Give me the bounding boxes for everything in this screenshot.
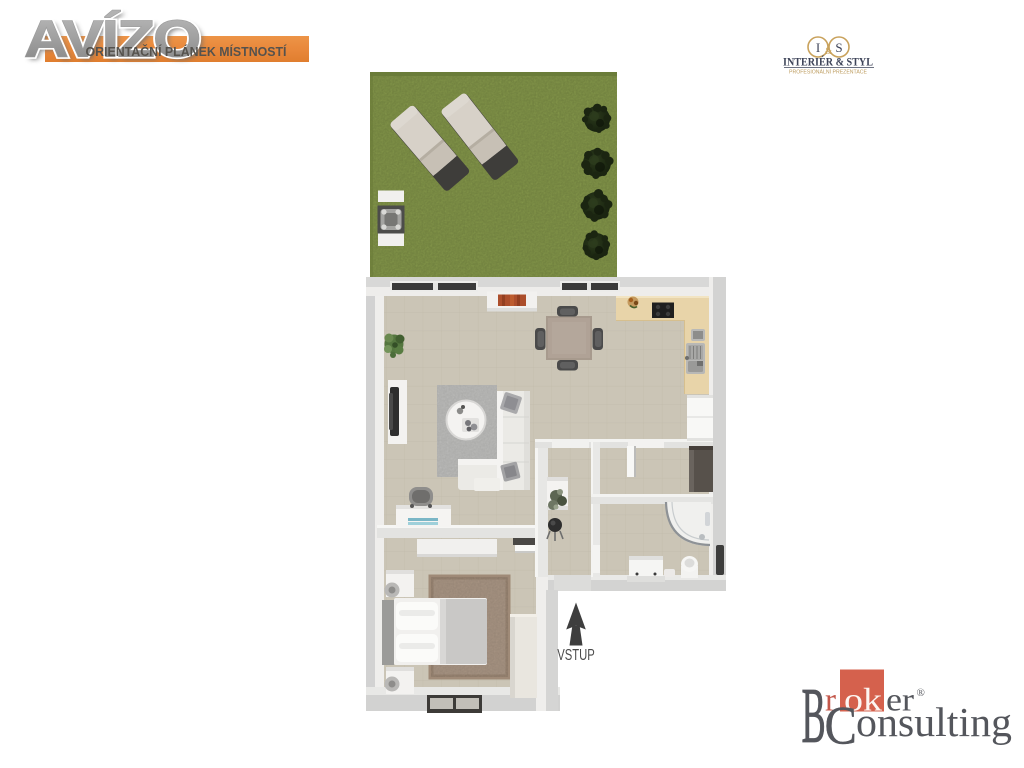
svg-text:B: B	[802, 672, 826, 760]
svg-text:INTERIÉR & STYL: INTERIÉR & STYL	[783, 55, 873, 69]
svg-text:PROFESIONÁLNÍ PREZENTACE: PROFESIONÁLNÍ PREZENTACE	[789, 69, 868, 76]
svg-text:S: S	[835, 40, 842, 55]
svg-text:onsulting: onsulting	[856, 699, 1012, 745]
svg-text:AVÍZO: AVÍZO	[24, 10, 200, 68]
svg-text:ORIENTAČNÍ PLÁNEK MÍSTNOSTÍ: ORIENTAČNÍ PLÁNEK MÍSTNOSTÍ	[86, 44, 287, 59]
svg-text:C: C	[825, 696, 857, 756]
svg-text:®: ®	[917, 687, 925, 699]
svg-text:I: I	[816, 40, 820, 55]
svg-text:VSTUP: VSTUP	[557, 647, 595, 664]
